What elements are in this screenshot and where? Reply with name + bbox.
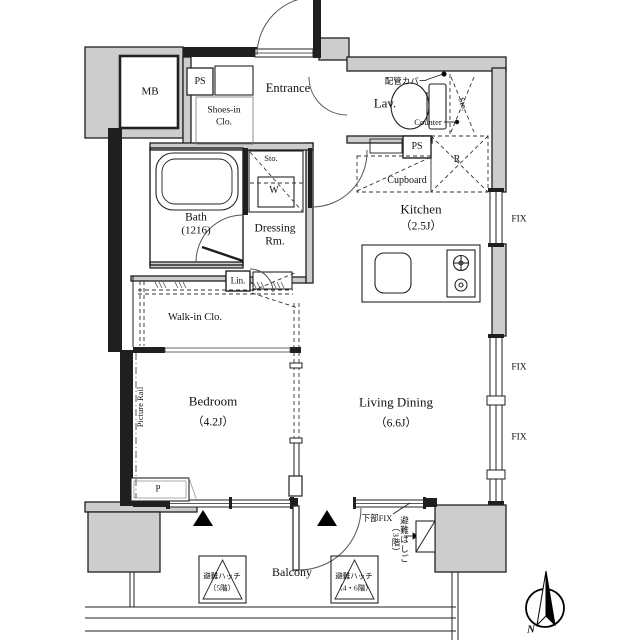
sliding-partition bbox=[289, 363, 302, 496]
entrance-label: Entrance bbox=[266, 82, 310, 95]
fix-window-label-middle: FIX bbox=[511, 363, 526, 373]
dressing-room-label2: Rm. bbox=[265, 236, 285, 248]
balcony-rails bbox=[85, 572, 458, 640]
ps-kitchen-label: PS bbox=[411, 142, 422, 152]
fix-window-label-bottom: FIX bbox=[511, 433, 526, 443]
living-dining-label: Living Dining bbox=[359, 396, 433, 409]
pipe-duct-ledge bbox=[131, 478, 197, 501]
pipe-cover-label: 配管カバー bbox=[385, 77, 428, 86]
floor-plan: MB PS Shoes-in Clo. Entrance 配管カバー Lav. … bbox=[0, 0, 640, 640]
bedroom-size-label: （4.2J） bbox=[192, 417, 234, 429]
dressing-room-label: Dressing bbox=[255, 223, 296, 235]
pillar-bottom-left bbox=[88, 512, 160, 572]
pillar-bottom-right bbox=[435, 505, 506, 572]
north-arrow-icon bbox=[526, 571, 564, 627]
shoes-closet-label2: Clo. bbox=[216, 118, 232, 128]
kitchen-counter bbox=[362, 245, 480, 302]
picture-rail-label: Picture Rail bbox=[136, 387, 145, 427]
bath-label: Bath bbox=[185, 212, 207, 224]
lavatory-door-arc bbox=[309, 77, 347, 115]
bath-door-leaf bbox=[202, 247, 243, 261]
washer-label: W bbox=[269, 186, 278, 196]
lavatory-label: Lav. bbox=[374, 97, 397, 110]
balcony-door-leaf bbox=[293, 506, 299, 570]
escape-ladder-label: 避難はしご（3階） bbox=[392, 516, 409, 564]
counter-label: Counter bbox=[414, 118, 441, 127]
linen-label: Lin. bbox=[231, 277, 246, 286]
kitchen-size-label: （2.5J） bbox=[400, 221, 442, 233]
bathtub bbox=[156, 153, 238, 210]
meter-box-label: MB bbox=[141, 87, 158, 98]
walkin-closet-label: Walk-in Clo. bbox=[168, 313, 222, 324]
cupboard-label: Cupboard bbox=[387, 176, 426, 186]
hatch-5f-label: 避難ハッチ bbox=[203, 572, 241, 580]
entrance-door-arc bbox=[257, 0, 315, 55]
shoes-closet-label: Shoes-in bbox=[207, 106, 240, 116]
bathtub-inner bbox=[162, 159, 232, 204]
living-size-label: （6.6J） bbox=[375, 418, 417, 430]
kitchen-door-leaf bbox=[308, 148, 312, 208]
kitchen-label: Kitchen bbox=[400, 203, 441, 216]
hatch-5f-label2: （5階） bbox=[209, 584, 235, 592]
fix-window-label-top: FIX bbox=[511, 215, 526, 225]
balcony-label: Balcony bbox=[272, 566, 312, 578]
bath-size-label: (1216) bbox=[181, 226, 210, 237]
bedroom-label: Bedroom bbox=[189, 395, 237, 408]
hatch-46f-label: 避難ハッチ bbox=[335, 572, 373, 580]
north-label: N bbox=[527, 625, 535, 636]
kitchen-door-arc bbox=[312, 150, 367, 207]
lower-fix-label: 下部FIX bbox=[362, 514, 393, 523]
floor-plan-drawing bbox=[0, 0, 640, 640]
shoes-cabinet bbox=[215, 66, 253, 95]
sto-dressing-label: Sto. bbox=[264, 154, 277, 163]
escape-ladder-box bbox=[416, 521, 435, 552]
hatch-46f-label2: （4・6階） bbox=[335, 584, 373, 592]
hatch-marker-right bbox=[317, 510, 337, 526]
ps-entrance-label: PS bbox=[194, 77, 205, 87]
cupboard-outline bbox=[357, 156, 431, 192]
refrigerator-label: R bbox=[454, 155, 461, 165]
pipe-duct-label: P bbox=[155, 485, 160, 494]
